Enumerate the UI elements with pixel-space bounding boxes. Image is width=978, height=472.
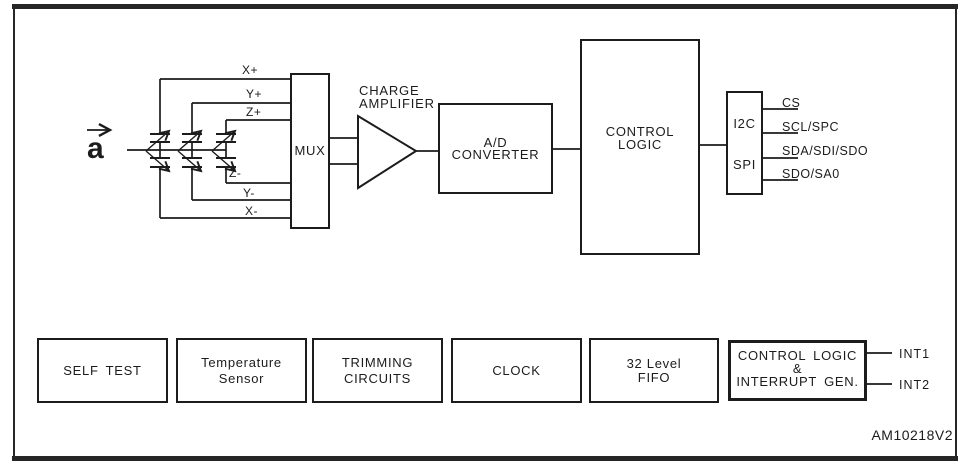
electrode-rails xyxy=(160,79,290,218)
adc-block: A/D CONVERTER xyxy=(438,103,553,194)
pin-label-int1: INT1 xyxy=(899,347,930,361)
spi-label: SPI xyxy=(733,159,756,172)
mux-block: MUX xyxy=(290,73,330,229)
fifo-block: 32 Level FIFO xyxy=(589,338,719,403)
serial-interface-block: I2C SPI xyxy=(726,91,763,195)
acceleration-symbol: a xyxy=(87,132,104,166)
mux-label: MUX xyxy=(295,145,326,158)
charge-amplifier-symbol xyxy=(358,116,416,188)
electrode-label-y-plus: Y+ xyxy=(246,87,262,101)
trimming-circuits-block: TRIMMING CIRCUITS xyxy=(312,338,443,403)
self-test-block: SELF TEST xyxy=(37,338,168,403)
figure-code: AM10218V2 xyxy=(871,427,953,443)
temperature-sensor-block: Temperature Sensor xyxy=(176,338,307,403)
electrode-label-x-minus: X- xyxy=(245,204,258,218)
pin-label-cs: CS xyxy=(782,96,800,110)
pin-label-sda-sdi-sdo: SDA/SDI/SDO xyxy=(782,144,868,158)
pin-label-int2: INT2 xyxy=(899,378,930,392)
electrode-label-z-minus: Z- xyxy=(229,166,241,180)
electrode-label-y-minus: Y- xyxy=(243,186,255,200)
i2c-label: I2C xyxy=(733,118,755,131)
electrode-label-x-plus: X+ xyxy=(242,63,258,77)
pin-label-scl-spc: SCL/SPC xyxy=(782,120,839,134)
charge-amplifier-label: CHARGE AMPLIFIER xyxy=(359,84,435,110)
control-logic-block: CONTROL LOGIC xyxy=(580,39,700,255)
interrupt-pin-stubs xyxy=(867,353,892,384)
block-diagram-figure: a X+ Y+ Z+ Z- Y- X- MUX CHARGE AMPLIFIER… xyxy=(0,0,978,472)
clock-block: CLOCK xyxy=(451,338,582,403)
interrupt-logic-block: CONTROL LOGIC & INTERRUPT GEN. xyxy=(728,340,867,401)
pin-label-sdo-sa0: SDO/SA0 xyxy=(782,167,840,181)
electrode-label-z-plus: Z+ xyxy=(246,105,261,119)
